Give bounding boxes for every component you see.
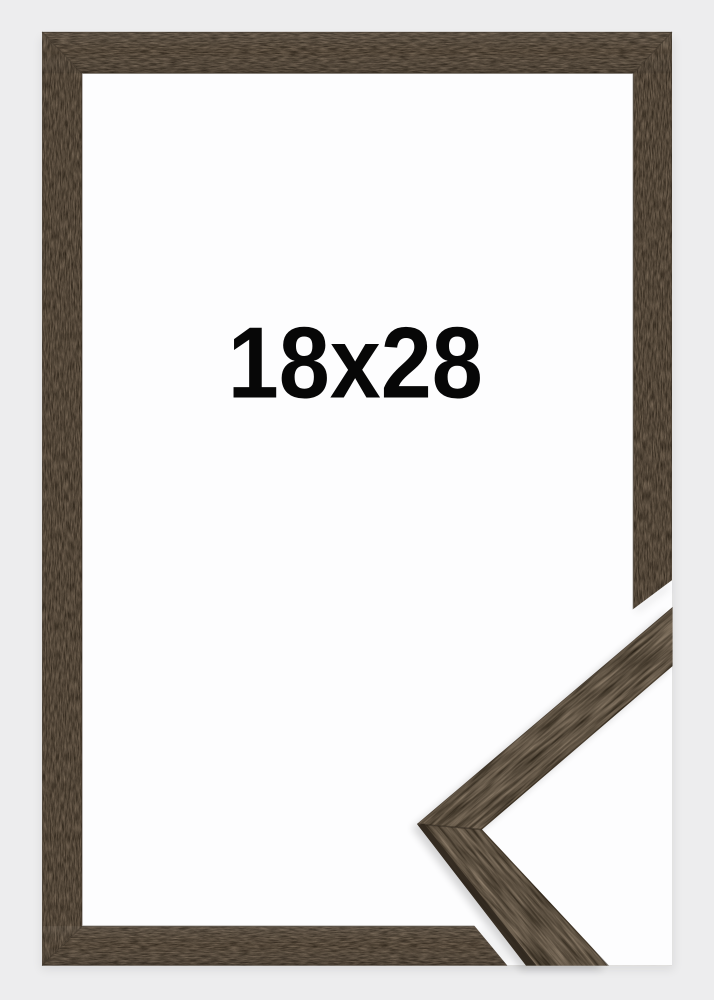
svg-text:18x28: 18x28 [228,308,483,420]
